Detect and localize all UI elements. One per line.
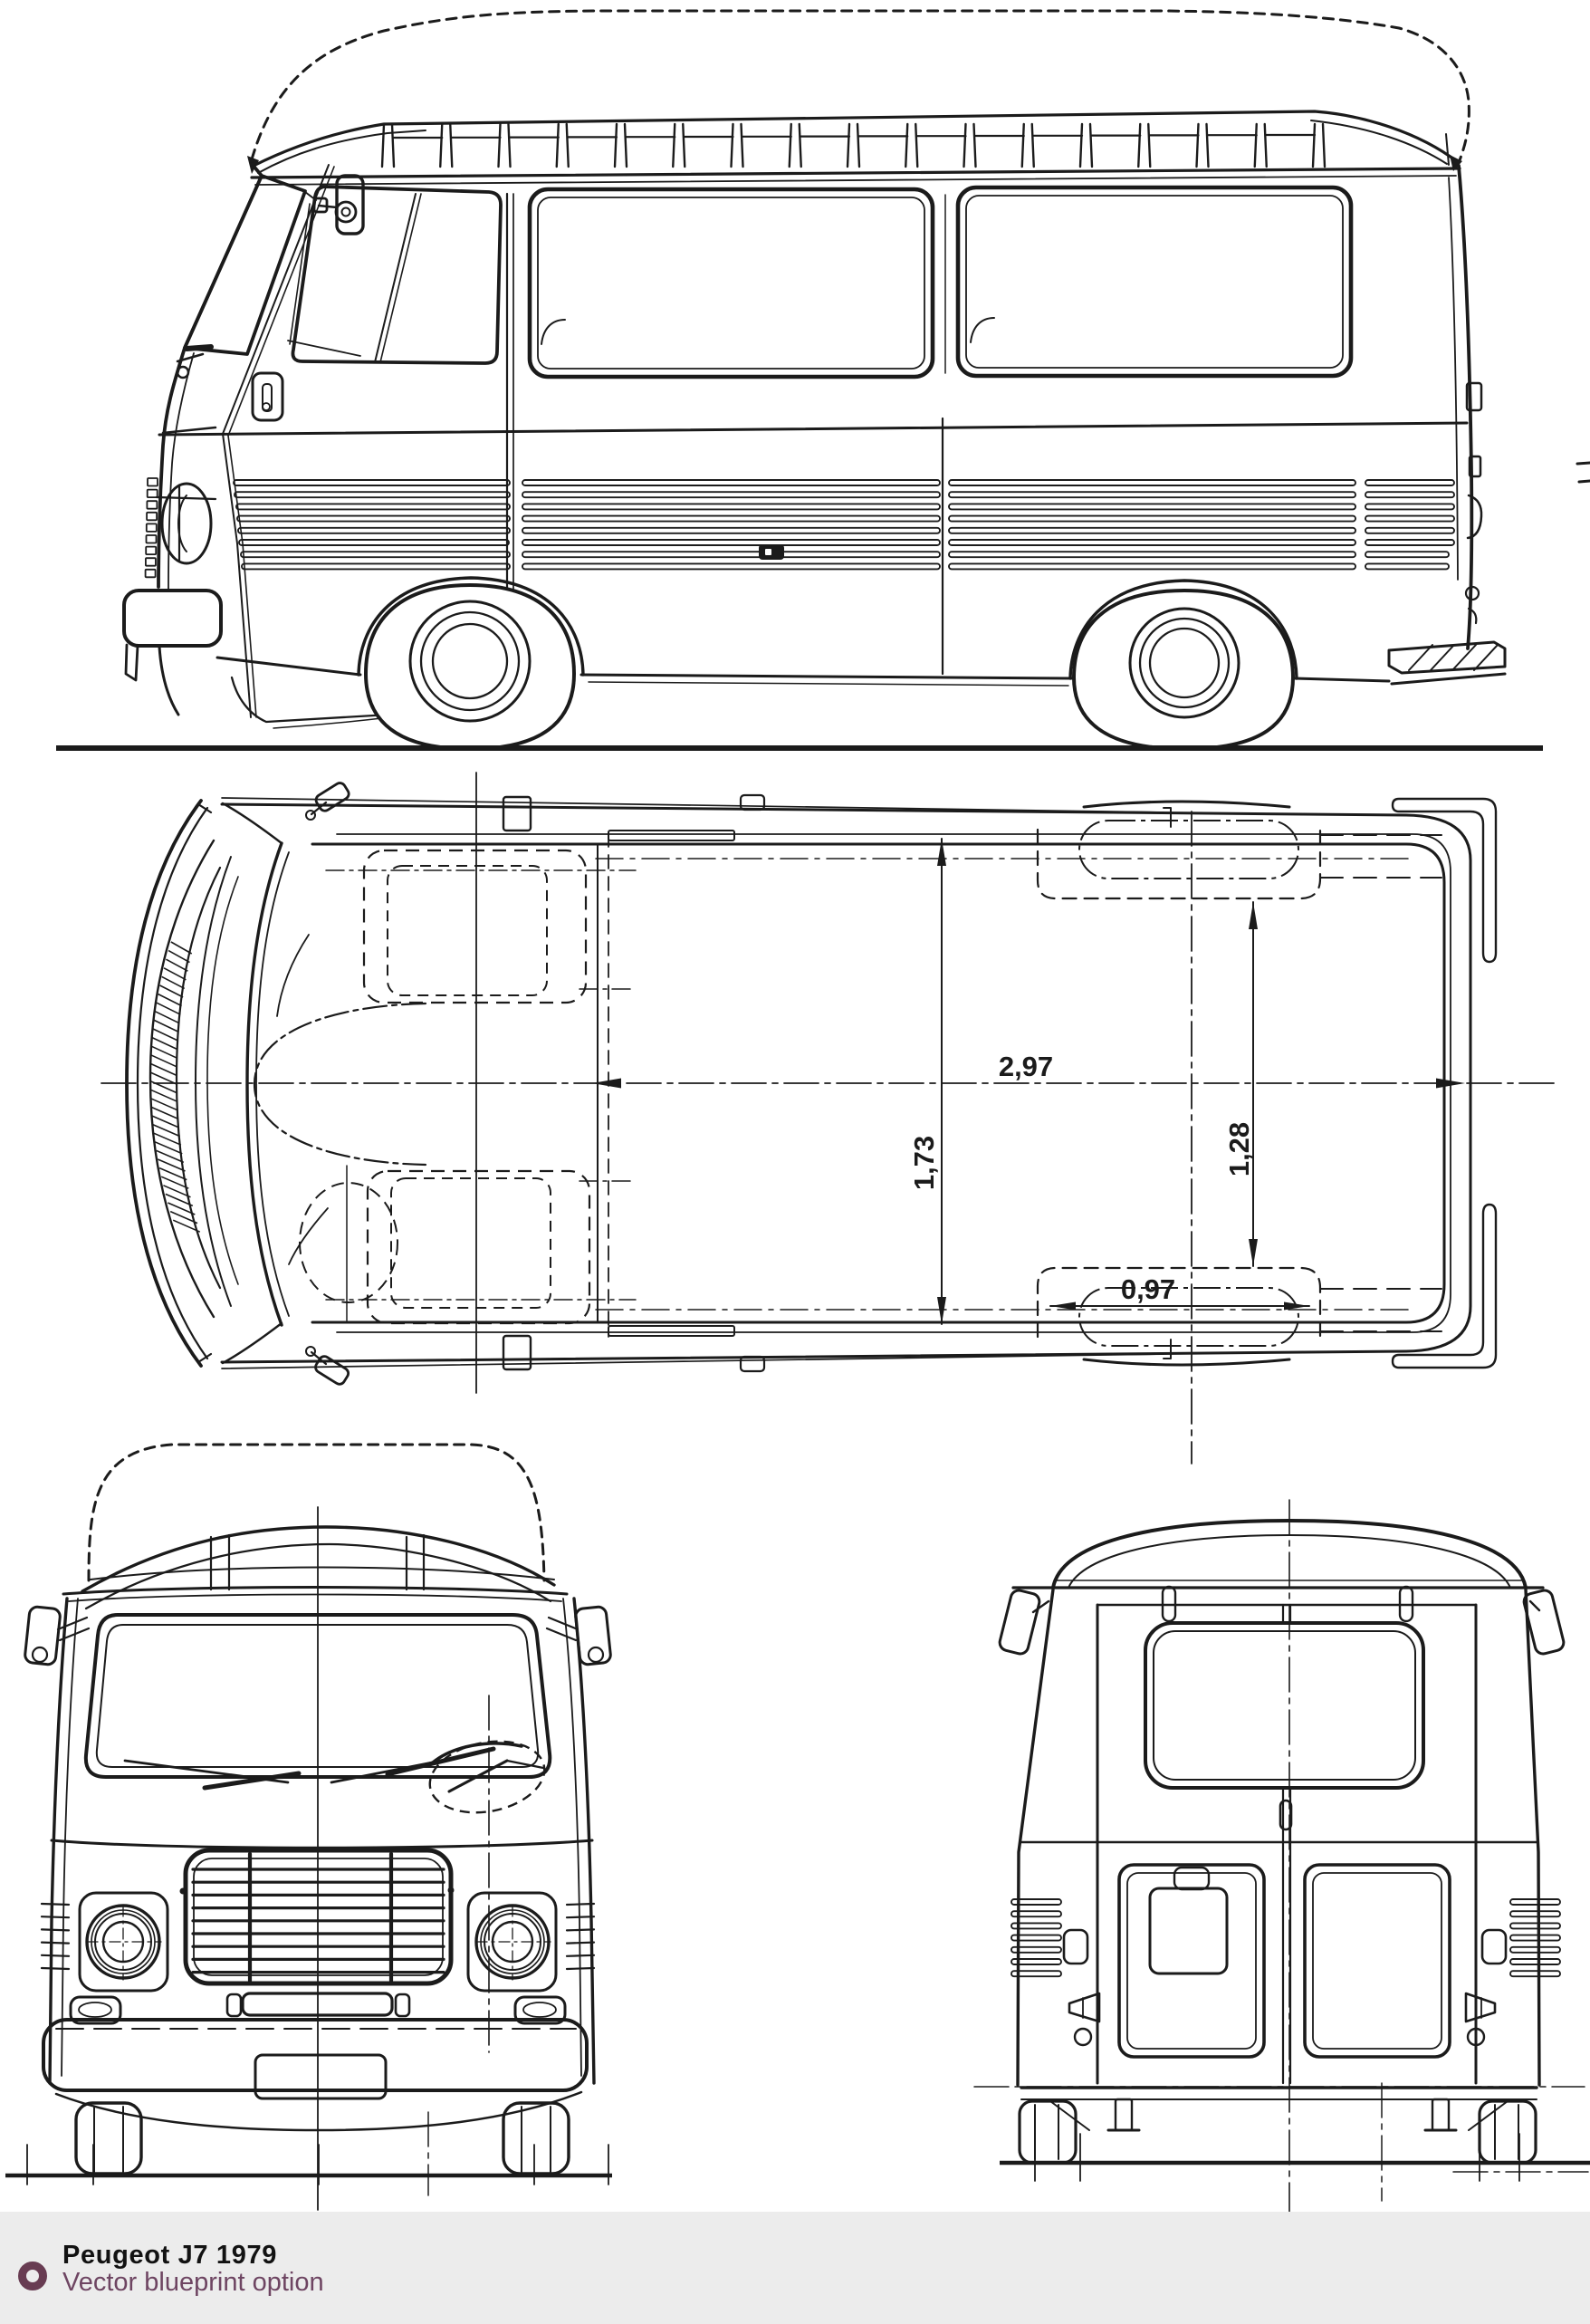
svg-text:1,28: 1,28 [1223, 1122, 1255, 1176]
svg-text:1,73: 1,73 [908, 1136, 940, 1190]
svg-text:2,97: 2,97 [999, 1051, 1053, 1082]
svg-text:0,97: 0,97 [1121, 1273, 1175, 1305]
